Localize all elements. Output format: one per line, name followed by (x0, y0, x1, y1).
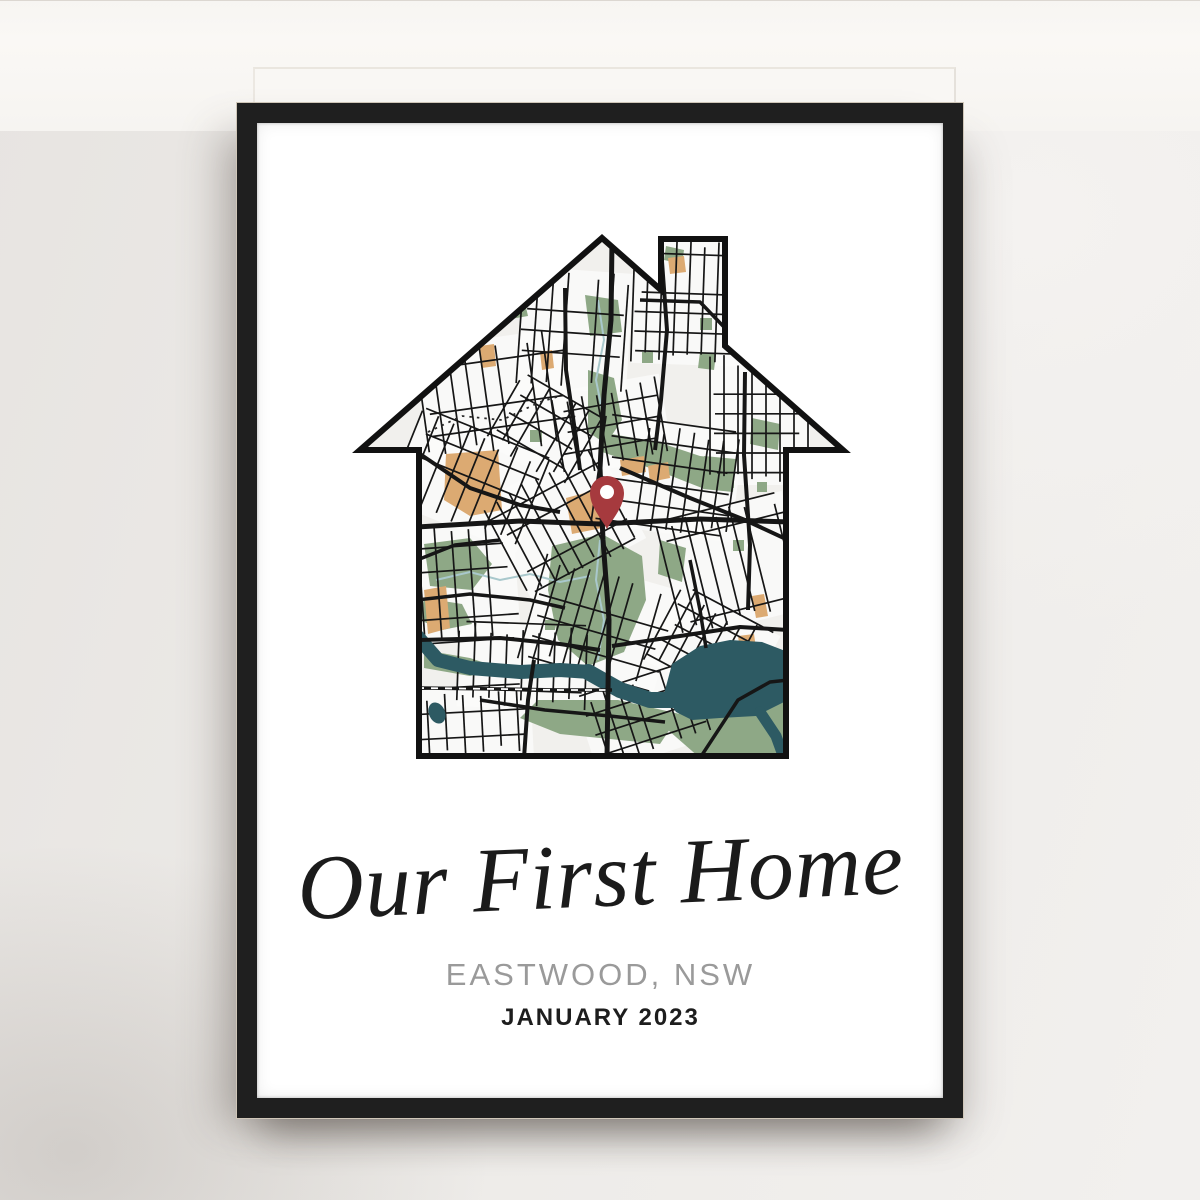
scene: Our First Home EASTWOOD, NSW JANUARY 202… (0, 0, 1200, 1200)
poster-date: JANUARY 2023 (258, 1004, 943, 1032)
poster-location: EASTWOOD, NSW (258, 957, 943, 993)
poster-title: Our First Home (255, 785, 946, 965)
